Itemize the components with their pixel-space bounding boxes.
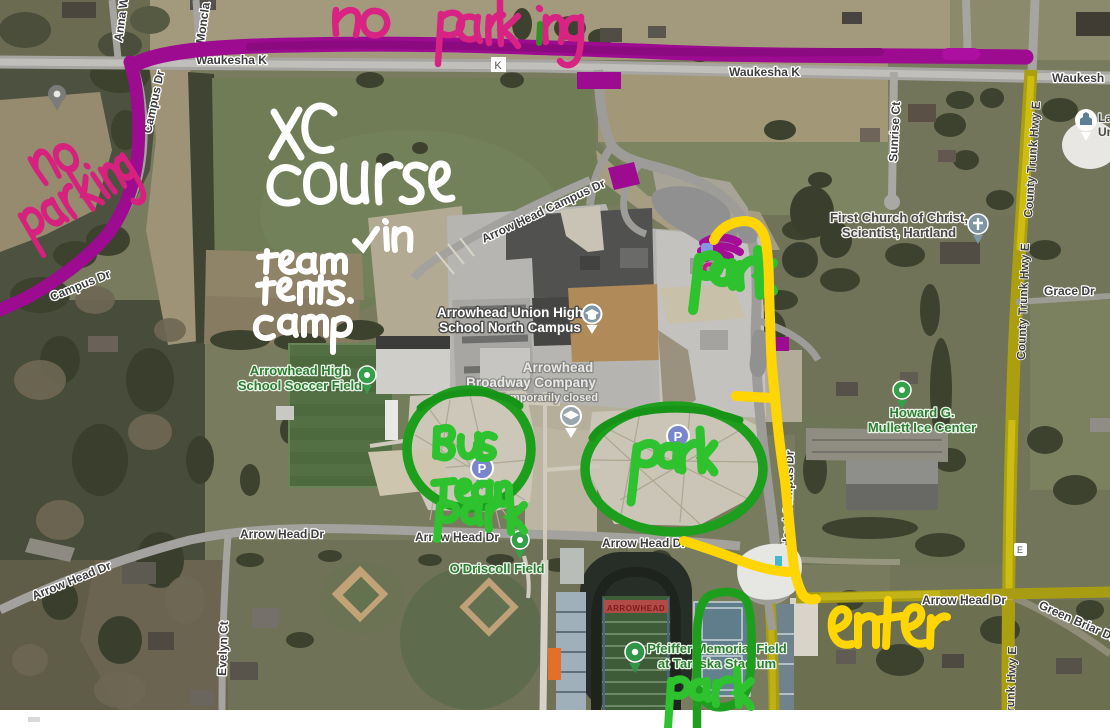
svg-text:La: La	[1098, 111, 1110, 125]
svg-text:Waukesha K: Waukesha K	[729, 65, 800, 79]
svg-text:at Taraska Stadium: at Taraska Stadium	[658, 656, 776, 671]
svg-text:K: K	[494, 60, 502, 72]
svg-text:Arrowhead: Arrowhead	[523, 360, 594, 375]
svg-text:Waukesh: Waukesh	[1052, 71, 1104, 85]
svg-text:Grace Dr: Grace Dr	[1044, 284, 1095, 298]
svg-text:Howard G.: Howard G.	[889, 405, 954, 420]
svg-text:O'Driscoll Field: O'Driscoll Field	[450, 561, 545, 576]
svg-text:First Church of Christ,: First Church of Christ,	[830, 210, 968, 225]
svg-text:Un: Un	[1098, 125, 1110, 139]
svg-text:Pfeiffer Memorial Field: Pfeiffer Memorial Field	[647, 641, 786, 656]
svg-text:School Soccer Field: School Soccer Field	[238, 378, 362, 393]
svg-text:ARROWHEAD: ARROWHEAD	[607, 604, 665, 613]
svg-text:P: P	[478, 461, 487, 476]
svg-text:Mullett Ice Center: Mullett Ice Center	[868, 420, 976, 435]
svg-text:Arrowhead Union High: Arrowhead Union High	[437, 305, 583, 320]
svg-text:Scientist, Hartland: Scientist, Hartland	[842, 225, 956, 240]
svg-text:Arrow Head Dr: Arrow Head Dr	[240, 527, 324, 541]
svg-text:runk Hwy E: runk Hwy E	[1003, 646, 1019, 712]
svg-text:Evelyn Ct: Evelyn Ct	[215, 621, 231, 676]
svg-text:Arrow Head Dr: Arrow Head Dr	[922, 593, 1006, 607]
svg-text:School North Campus: School North Campus	[439, 320, 581, 335]
svg-text:E: E	[1017, 545, 1023, 555]
svg-text:Arrow Head Dr: Arrow Head Dr	[602, 536, 686, 550]
svg-text:Arrowhead High: Arrowhead High	[250, 363, 350, 378]
